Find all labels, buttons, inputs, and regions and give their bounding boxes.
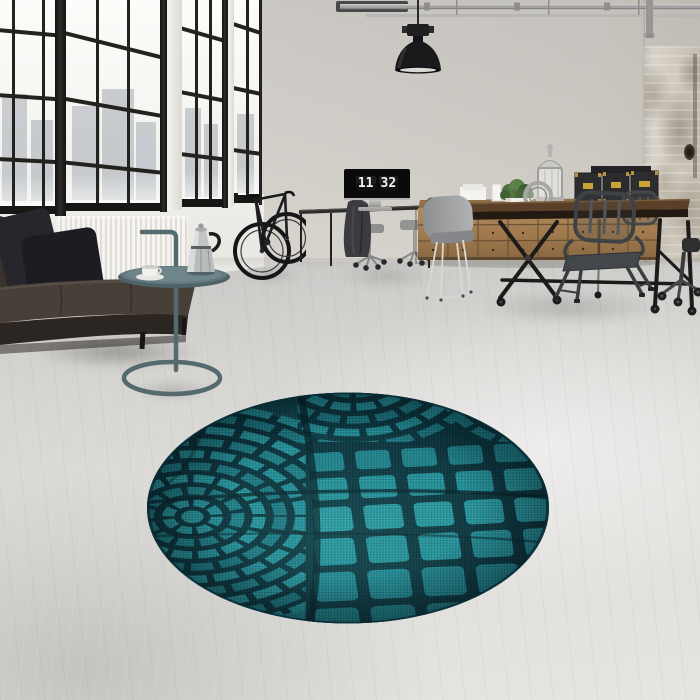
window-mullion: [127, 0, 130, 211]
window-mullion: [182, 26, 222, 43]
clock-minutes: 32: [379, 176, 399, 191]
window-mullion: [209, 0, 212, 207]
window-frame-column: [160, 0, 167, 212]
window-frame-column: [55, 0, 66, 216]
table-loop-base: [124, 362, 220, 394]
round-teal-rug: [146, 392, 550, 624]
window-frame-column: [259, 0, 262, 205]
window-mullion: [182, 90, 222, 103]
table-stem: [142, 232, 176, 370]
lamp-diffuser: [400, 68, 436, 72]
side-table: [112, 220, 242, 405]
pendant-lamp: [390, 0, 446, 84]
crank: [264, 239, 271, 246]
clock-hours: 11: [356, 176, 376, 191]
window-mullion: [0, 28, 55, 37]
saddle: [247, 194, 260, 198]
window-bay-3: [182, 0, 222, 207]
monitor-base: [358, 207, 392, 211]
window-mullion: [66, 30, 160, 60]
chair-seat-edge: [682, 238, 700, 252]
window-bay-4: [234, 0, 259, 203]
window-bay-2: [66, 0, 160, 211]
moka-pot: [187, 223, 219, 275]
office-chair-base-right: [648, 238, 700, 308]
loft-room-photo: 11 32: [0, 0, 700, 700]
monitor-flip-clock: 11 32: [344, 169, 410, 200]
pipe-vertical: [646, 0, 653, 38]
window-bay-1: [0, 0, 55, 214]
wall-pillar: [167, 0, 182, 210]
chair-column: [681, 252, 684, 280]
chair-star-base: [662, 280, 698, 300]
lamp-gearbox: [407, 24, 429, 36]
